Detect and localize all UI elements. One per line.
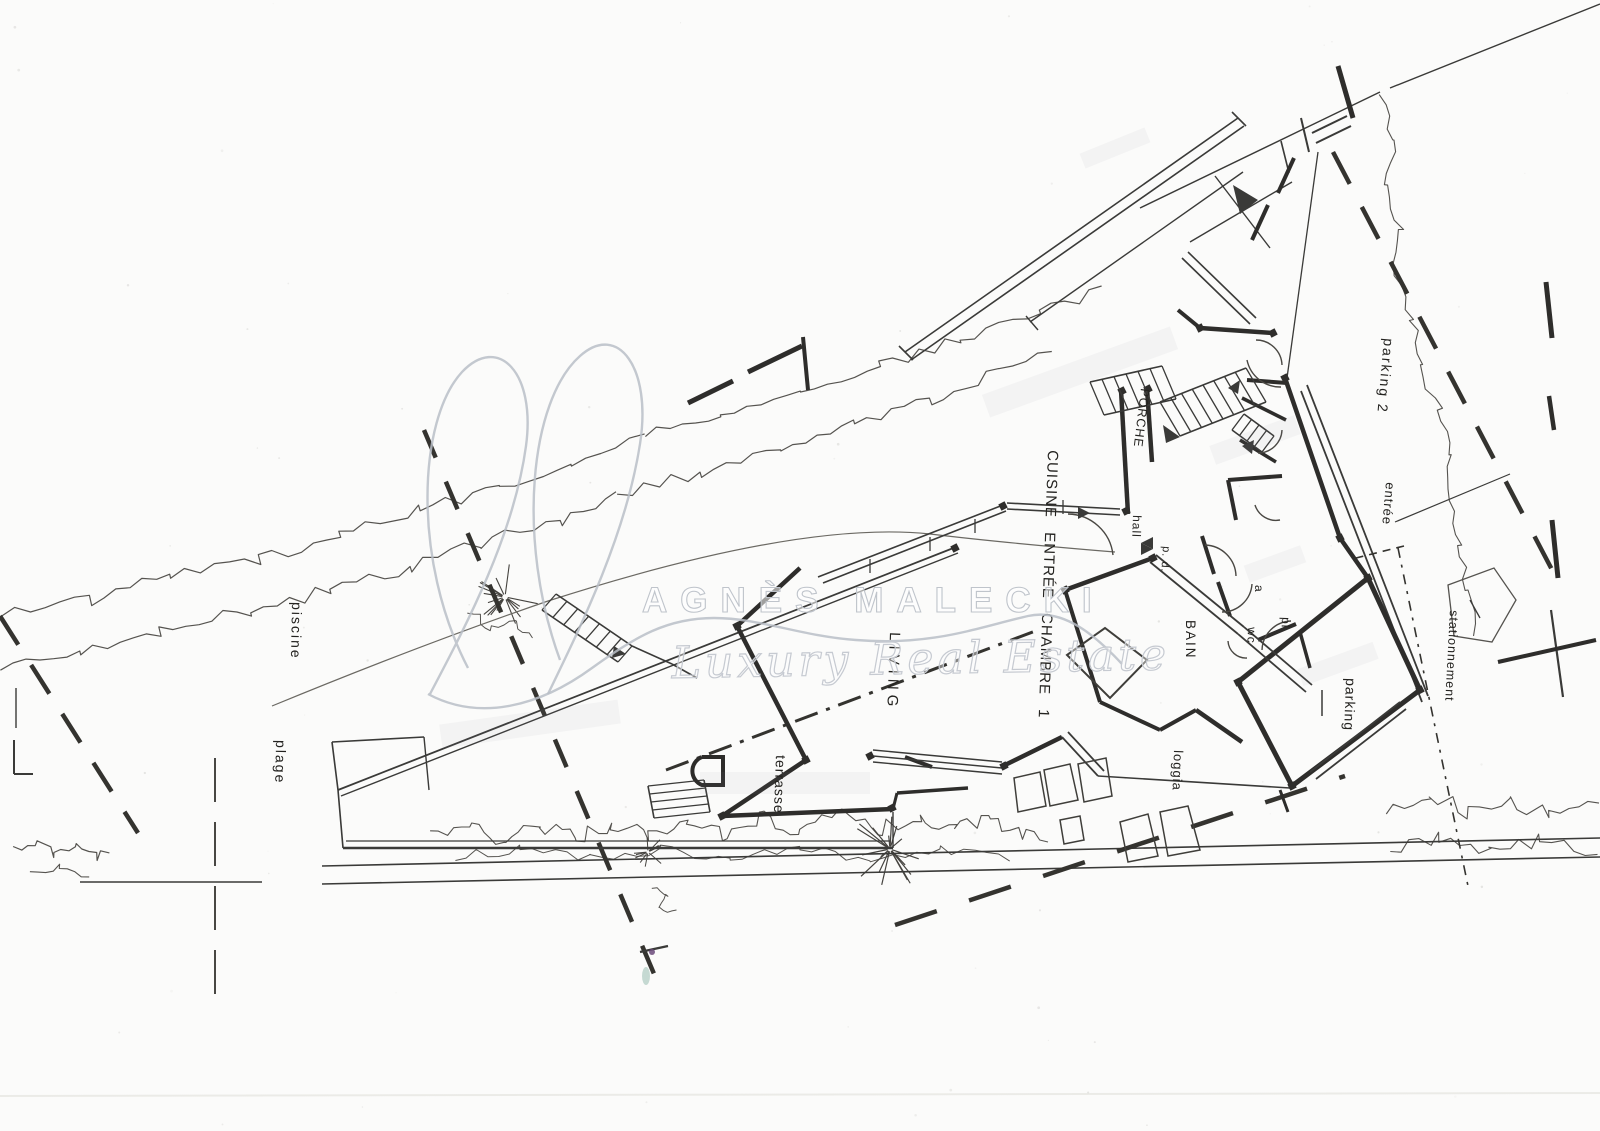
label-pd: p. d. xyxy=(1158,546,1172,573)
label-loggia: loggia xyxy=(1170,750,1186,791)
watermark-tagline: Luxury Real Estate xyxy=(670,629,1170,689)
plan-linework xyxy=(0,3,1600,1126)
label-wc: wc xyxy=(1244,626,1259,644)
label-piscine: piscine xyxy=(288,602,305,660)
label-hall: hall xyxy=(1129,515,1144,538)
scanned-site-plan-page: piscine plage terrasse LIVING CUISINE EN… xyxy=(0,0,1600,1131)
label-stationnement: stationnement xyxy=(1442,610,1461,702)
label-parking-2: parking 2 xyxy=(1374,338,1397,415)
label-bain: BAIN xyxy=(1183,620,1198,660)
label-terrasse: terrasse xyxy=(771,755,789,814)
label-placard-a: a xyxy=(1252,585,1266,593)
label-parking: parking xyxy=(1341,678,1359,731)
watermark-agency-name: AGNÈS MALECKI xyxy=(642,580,1105,620)
label-entree: entrée xyxy=(1379,482,1398,526)
site-plan-drawing: piscine plage terrasse LIVING CUISINE EN… xyxy=(0,0,1600,1131)
label-plage: plage xyxy=(272,740,289,785)
label-pl: pl xyxy=(1279,617,1293,629)
